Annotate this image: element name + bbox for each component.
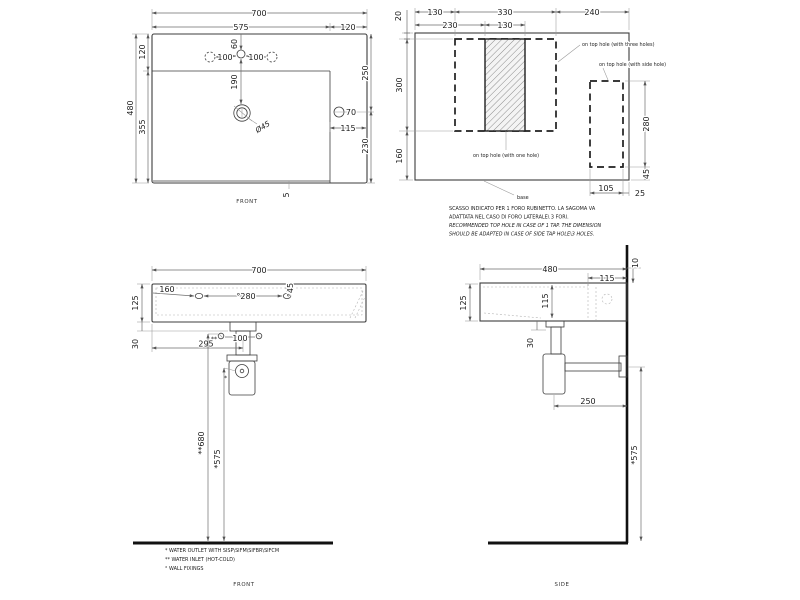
dim-tap-left: 100	[217, 53, 232, 62]
dim-drain-offset: 190	[230, 74, 239, 89]
side-elevation-view: 480 115 10 125 115 30 250 *575 SIDE	[459, 245, 645, 588]
dim-drain-diameter: Ø45	[253, 119, 272, 135]
dim-deck-width: 120	[340, 23, 355, 32]
dim-side-upper: 250	[361, 65, 370, 80]
dim-screw-spacing: 100	[232, 334, 247, 343]
basin-outline-side	[480, 283, 627, 321]
dim-front-height: 125	[131, 295, 140, 310]
dim-230: 230	[442, 21, 457, 30]
dim-10: 10	[631, 258, 640, 268]
dim-side-height: 125	[459, 295, 468, 310]
dim-side-30: 30	[526, 338, 535, 348]
dim-300: 300	[395, 77, 404, 92]
note-english-1: RECOMMENDED TOP HOLE IN CASE OF 1 TAP. T…	[449, 223, 602, 229]
dim-240: 240	[584, 8, 599, 17]
top-hole-template-view: 130 330 240 230 130 20 300 160 280 45 10…	[394, 8, 666, 238]
technical-drawing-sheet: 700 575 120 60 100 100 190 120 355 480 Ø…	[0, 0, 800, 600]
dim-deck: 115	[599, 274, 614, 283]
label-base: base	[517, 195, 529, 201]
note-italian-1: SCASSO INDICATO PER 1 FORO RUBINETTO. LA…	[449, 206, 596, 212]
dim-fixing-top: °45	[286, 283, 295, 297]
side-view-caption: SIDE	[555, 582, 570, 588]
dim-bowl-inner-depth: 115	[541, 293, 550, 308]
note-water-inlet: ** WATER INLET (HOT-COLD)	[165, 557, 235, 563]
front-elevation-view: 160 °280 °45 700 125 30 ** * 100 295	[131, 266, 366, 588]
front-view-caption: FRONT	[233, 582, 255, 588]
dim-bowl-width: 575	[233, 23, 248, 32]
water-outlet-front	[236, 365, 249, 378]
dim-25: 25	[635, 189, 645, 198]
dim-side-width: 480	[542, 265, 557, 274]
dim-tap-right: 100	[248, 53, 263, 62]
dim-side-lower: 230	[361, 138, 370, 153]
dim-160: 160	[395, 148, 404, 163]
top-plan-view: 700 575 120 60 100 100 190 120 355 480 Ø…	[126, 9, 375, 205]
side-hole-region	[590, 81, 623, 167]
dim-105: 105	[598, 184, 613, 193]
siphon-side	[543, 321, 627, 394]
dim-280: 280	[642, 116, 651, 131]
dim-inlet-height: **680	[197, 431, 206, 454]
note-wall-fixings: ° WALL FIXINGS	[165, 566, 204, 572]
dim-outlet-height: *575	[213, 449, 222, 468]
dim-top-width: 700	[251, 9, 266, 18]
dim-20: 20	[394, 11, 403, 21]
siphon-front	[218, 322, 262, 395]
dim-130-left: 130	[427, 8, 442, 17]
dim-side-hole: 70	[346, 108, 356, 117]
outlet-pipe-side	[565, 363, 621, 371]
dim-depth: 480	[126, 100, 135, 115]
dim-pipe-length: 250	[580, 397, 595, 406]
dim-45: 45	[642, 169, 651, 179]
optional-tap-hole-right	[267, 52, 277, 62]
label-three-holes: on top hole (with three holes)	[582, 42, 655, 48]
dim-bottom-gap: 5	[282, 192, 291, 197]
tap-hole	[237, 50, 245, 58]
dim-rim-top: 120	[138, 44, 147, 59]
note-italian-2: ADATTATA NEL CASO DI FORO LATERALE\ 3 FO…	[449, 215, 569, 221]
optional-tap-hole-left	[205, 52, 215, 62]
label-one-hole: on top hole (with one hole)	[473, 153, 539, 159]
dim-tap-offset: 60	[230, 39, 239, 49]
label-side-hole: on top hole (with side hole)	[599, 62, 666, 68]
outlet-mark: *	[224, 375, 227, 382]
dim-side-outlet-height: *575	[630, 445, 639, 464]
note-water-outlet: * WATER OUTLET WITH SISP\SIFM\SIFBR\SIFC…	[165, 548, 279, 554]
one-hole-region	[485, 39, 525, 131]
dim-bowl-depth: 355	[138, 119, 147, 134]
dim-fixing-left: 160	[159, 285, 174, 294]
top-view-caption: FRONT	[236, 199, 258, 205]
dim-130-center: 130	[497, 21, 512, 30]
dim-front-30: 30	[131, 339, 140, 349]
dim-330: 330	[497, 8, 512, 17]
dim-fixing-spacing: °280	[236, 292, 255, 301]
dim-drain-from-left: 295	[198, 340, 213, 349]
basin-outline-front	[152, 284, 366, 322]
washbasin-technical-drawing: 700 575 120 60 100 100 190 120 355 480 Ø…	[0, 0, 800, 600]
wall-fixing-hole-left	[195, 293, 203, 298]
dim-side-hole-inset: 115	[340, 124, 355, 133]
note-english-2: SHOULD BE ADAPTED IN CASE OF SIDE TAP HO…	[449, 232, 594, 238]
dim-front-width: 700	[251, 266, 266, 275]
